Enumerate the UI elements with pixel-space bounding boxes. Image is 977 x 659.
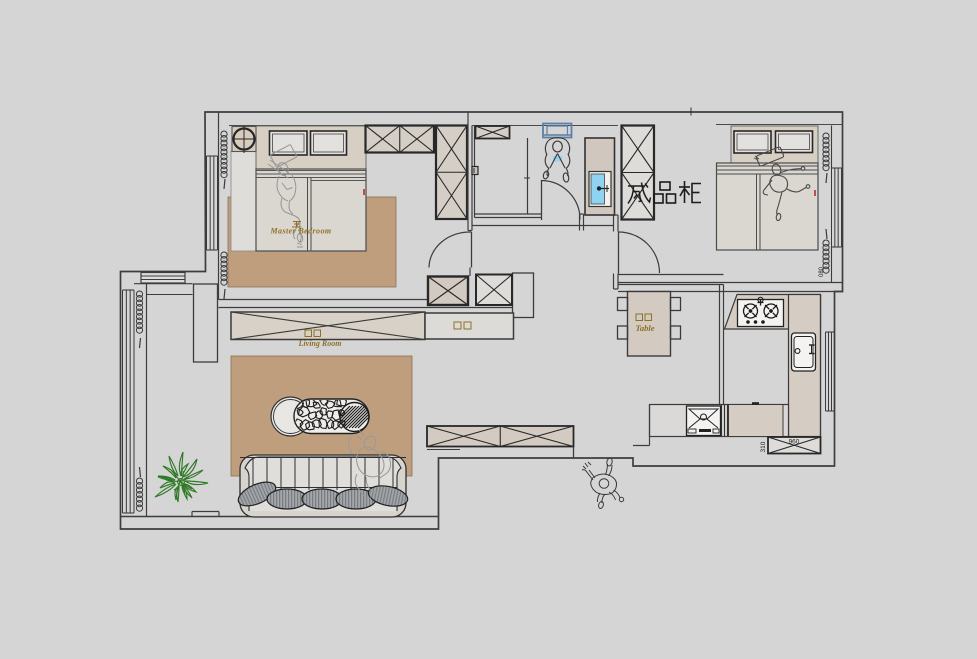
svg-text:Living Room: Living Room — [298, 339, 342, 348]
svg-text:960: 960 — [789, 439, 800, 446]
svg-text:Master Bedroom: Master Bedroom — [270, 227, 332, 236]
svg-text:Table: Table — [635, 323, 654, 333]
svg-text:310: 310 — [760, 441, 767, 452]
svg-text:080: 080 — [819, 266, 825, 277]
